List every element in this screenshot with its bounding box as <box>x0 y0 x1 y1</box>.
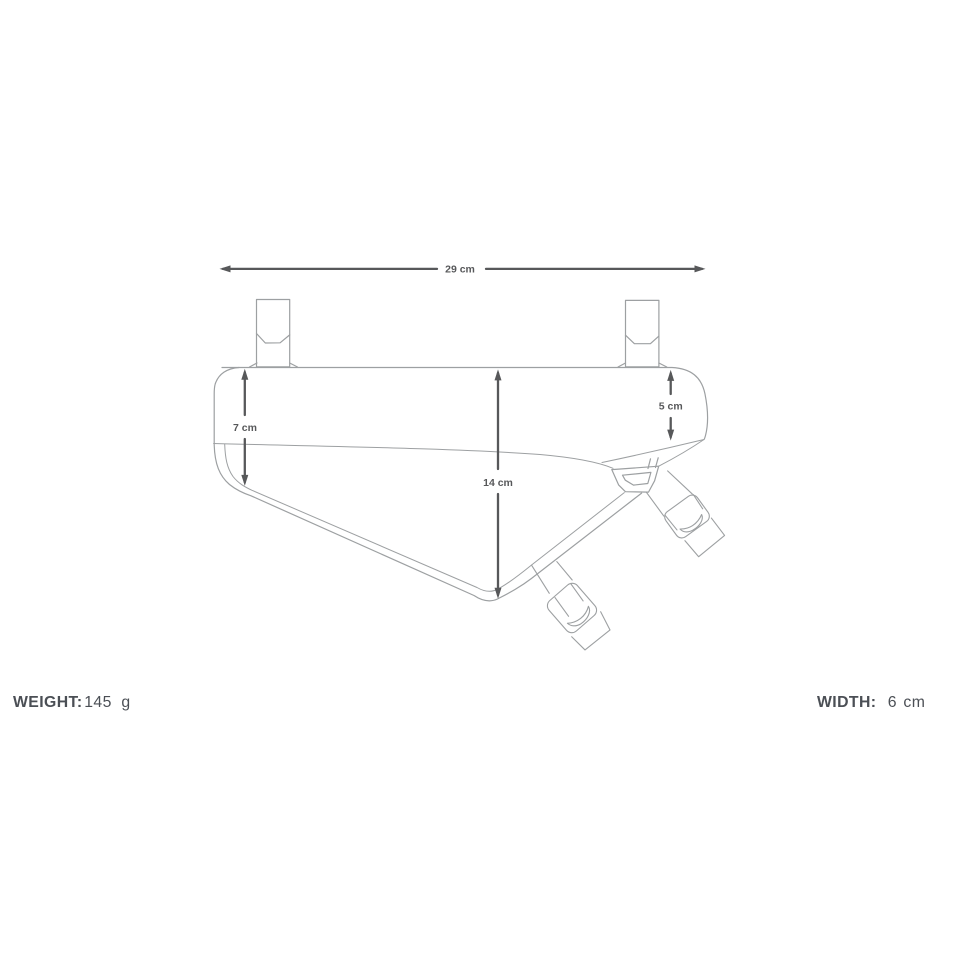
svg-text:7 cm: 7 cm <box>233 422 257 434</box>
svg-text:14 cm: 14 cm <box>483 477 513 489</box>
svg-text:5 cm: 5 cm <box>659 401 683 413</box>
svg-text:29 cm: 29 cm <box>445 264 475 276</box>
